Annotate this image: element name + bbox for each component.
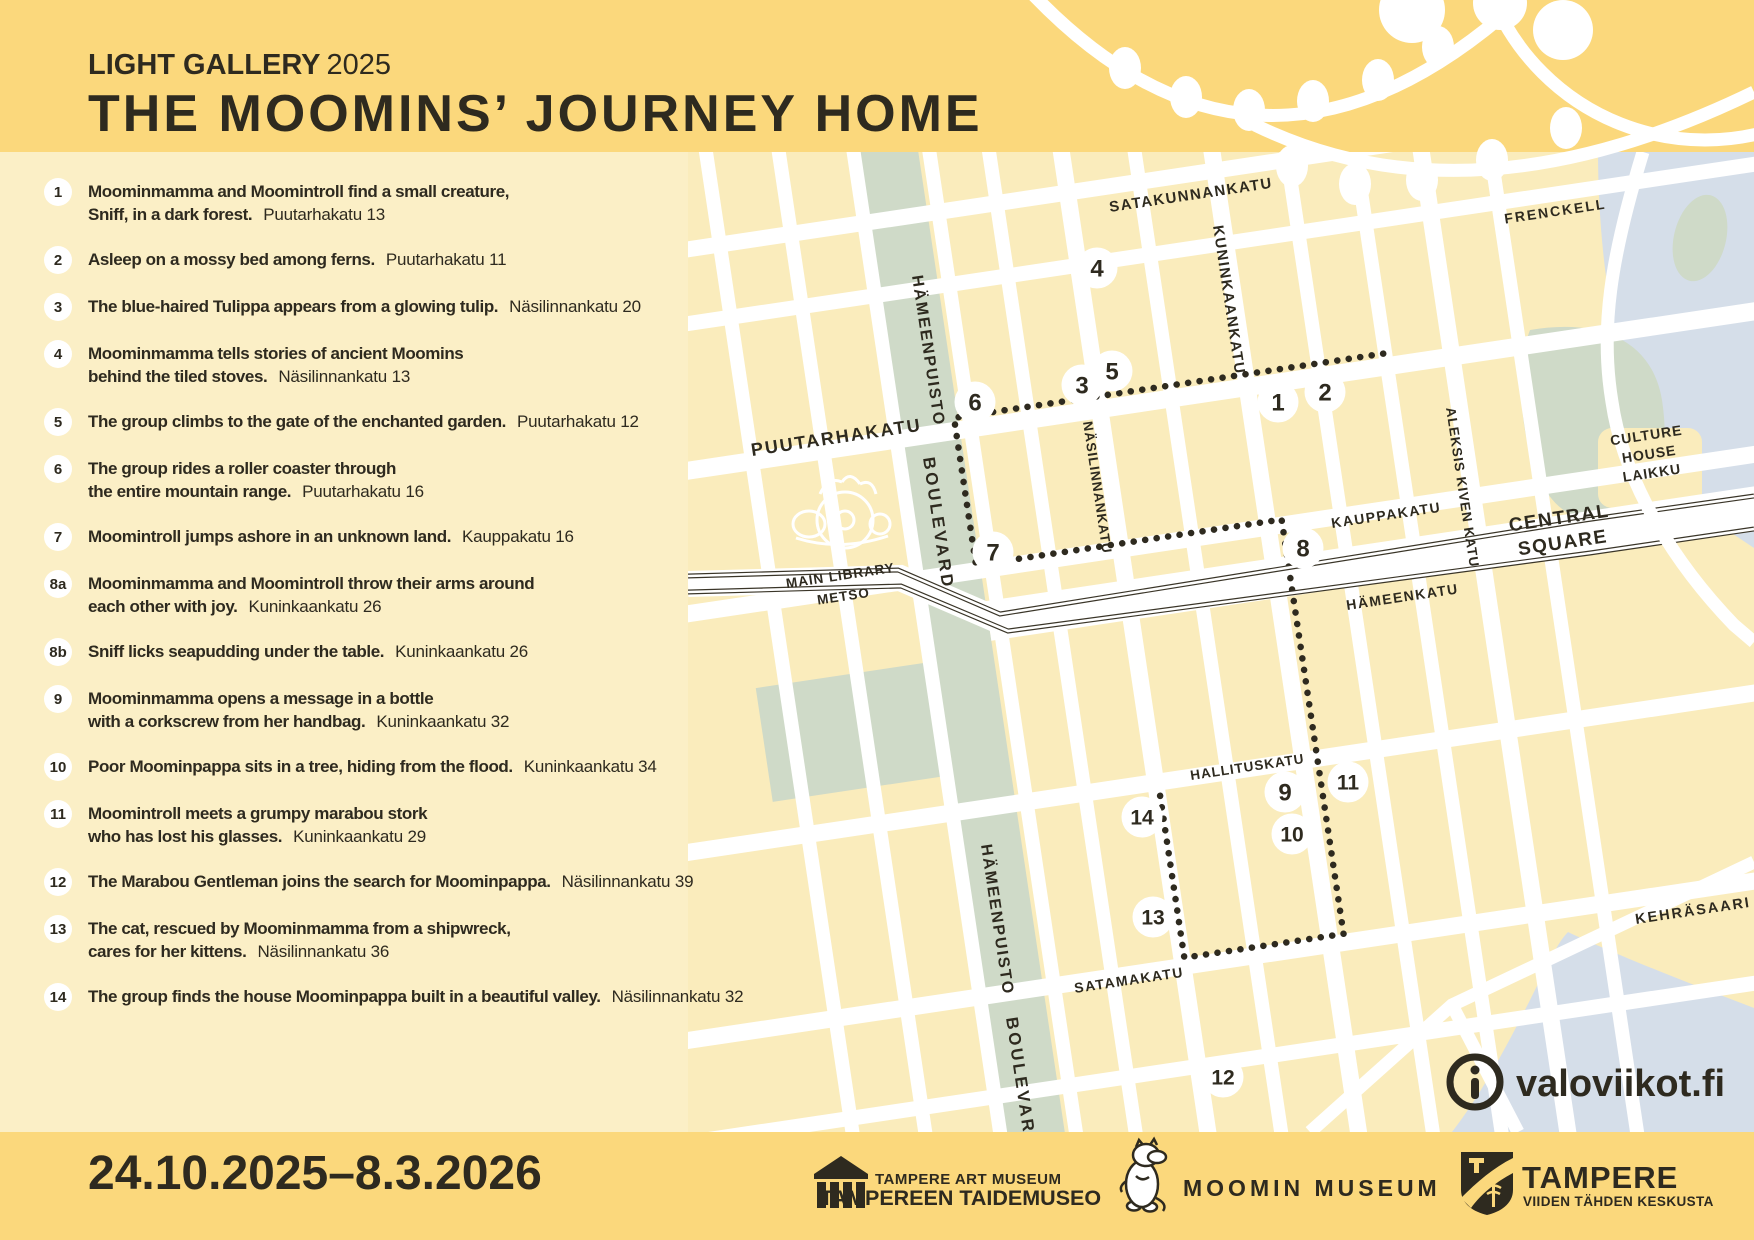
map-marker-5: 5	[1092, 351, 1133, 392]
stop-address: Näsilinnankatu 39	[562, 872, 694, 891]
stop-item-12: 12The Marabou Gentleman joins the search…	[44, 871, 744, 896]
stop-number-badge: 5	[44, 408, 72, 436]
stop-number-badge: 10	[44, 753, 72, 781]
tampere-city-logo: TAMPERE VIIDEN TÄHDEN KESKUSTA	[1461, 1152, 1714, 1215]
svg-text:1: 1	[1271, 390, 1284, 417]
stop-description: Sniff licks seapudding under the table.K…	[88, 641, 528, 664]
stop-description: Asleep on a mossy bed among ferns.Puutar…	[88, 249, 506, 272]
stop-description: Moomintroll jumps ashore in an unknown l…	[88, 526, 574, 549]
stop-item-11: 11Moomintroll meets a grumpy marabou sto…	[44, 803, 744, 849]
title-year: 2025	[327, 49, 392, 81]
stop-address: Näsilinnankatu 13	[278, 367, 410, 386]
svg-text:11: 11	[1337, 772, 1360, 795]
tampere-name: TAMPERE	[1522, 1160, 1678, 1195]
stop-item-14: 14The group finds the house Moominpappa …	[44, 986, 744, 1011]
map-marker-2: 2	[1305, 372, 1346, 413]
stop-number-badge: 9	[44, 685, 72, 713]
svg-text:3: 3	[1075, 373, 1088, 400]
stop-address: Puutarhakatu 12	[517, 412, 639, 431]
stop-item-2: 2Asleep on a mossy bed among ferns.Puuta…	[44, 249, 744, 274]
stop-description: Moominmamma and Moomintroll find a small…	[88, 181, 509, 227]
stop-address: Kuninkaankatu 34	[524, 757, 657, 776]
website-link[interactable]: valoviikot.fi	[1516, 1063, 1725, 1105]
svg-text:10: 10	[1280, 824, 1303, 847]
stop-item-8b: 8bSniff licks seapudding under the table…	[44, 641, 744, 666]
stop-number-badge: 14	[44, 983, 72, 1011]
svg-text:13: 13	[1141, 907, 1164, 930]
svg-text:2: 2	[1318, 380, 1331, 407]
stop-description: The group climbs to the gate of the ench…	[88, 411, 639, 434]
svg-text:8: 8	[1296, 536, 1309, 563]
stop-item-6: 6The group rides a roller coaster throug…	[44, 458, 744, 504]
stop-number-badge: 6	[44, 455, 72, 483]
svg-text:14: 14	[1130, 807, 1154, 830]
tampere-shield-icon	[1461, 1152, 1513, 1215]
stop-number-badge: 7	[44, 523, 72, 551]
map-marker-12: 12	[1203, 1057, 1244, 1098]
svg-text:6: 6	[968, 390, 981, 417]
stop-address: Kauppakatu 16	[462, 527, 574, 546]
stop-number-badge: 3	[44, 293, 72, 321]
stop-number-badge: 8a	[44, 570, 72, 598]
stop-description: Moominmamma and Moomintroll throw their …	[88, 573, 534, 619]
stop-item-8a: 8aMoominmamma and Moomintroll throw thei…	[44, 573, 744, 619]
stop-number-badge: 4	[44, 340, 72, 368]
svg-text:5: 5	[1105, 359, 1118, 386]
stop-number-badge: 1	[44, 178, 72, 206]
stop-address: Puutarhakatu 13	[263, 205, 385, 224]
map-marker-14: 14	[1122, 797, 1163, 838]
svg-text:7: 7	[986, 540, 999, 567]
art-museum-name-fi: TAMPEREEN TAIDEMUSEO	[820, 1186, 1101, 1210]
stop-address: Näsilinnankatu 32	[612, 987, 744, 1006]
map-marker-7: 7	[973, 532, 1014, 573]
stop-description: The group rides a roller coaster through…	[88, 458, 424, 504]
stop-description: Poor Moominpappa sits in a tree, hiding …	[88, 756, 657, 779]
moomin-museum-name: MOOMIN MUSEUM	[1183, 1175, 1441, 1201]
stop-address: Puutarhakatu 16	[302, 482, 424, 501]
map-marker-8: 8	[1283, 528, 1324, 569]
svg-text:9: 9	[1278, 780, 1291, 807]
stop-number-badge: 2	[44, 246, 72, 274]
stop-item-13: 13The cat, rescued by Moominmamma from a…	[44, 918, 744, 964]
map-marker-13: 13	[1133, 897, 1174, 938]
stop-item-7: 7Moomintroll jumps ashore in an unknown …	[44, 526, 744, 551]
svg-text:12: 12	[1211, 1067, 1234, 1090]
stop-item-9: 9Moominmamma opens a message in a bottle…	[44, 688, 744, 734]
title-main: THE MOOMINS’ JOURNEY HOME	[88, 86, 983, 142]
map-marker-1: 1	[1258, 382, 1299, 423]
stop-description: The cat, rescued by Moominmamma from a s…	[88, 918, 511, 964]
map-marker-11: 11	[1328, 762, 1369, 803]
stop-address: Kuninkaankatu 26	[248, 597, 381, 616]
title-gallery: LIGHT GALLERY	[88, 49, 321, 81]
stop-address: Puutarhakatu 11	[386, 250, 507, 269]
stop-description: Moominmamma tells stories of ancient Moo…	[88, 343, 463, 389]
stop-number-badge: 8b	[44, 638, 72, 666]
poster-title: LIGHT GALLERY2025 THE MOOMINS’ JOURNEY H…	[88, 48, 983, 142]
stop-item-4: 4Moominmamma tells stories of ancient Mo…	[44, 343, 744, 389]
map-marker-10: 10	[1272, 814, 1313, 855]
svg-text:4: 4	[1090, 256, 1104, 283]
stop-address: Kuninkaankatu 29	[293, 827, 426, 846]
stop-description: Moomintroll meets a grumpy marabou stork…	[88, 803, 427, 849]
stop-description: The blue-haired Tulippa appears from a g…	[88, 296, 641, 319]
stop-address: Kuninkaankatu 32	[376, 712, 509, 731]
stop-item-10: 10Poor Moominpappa sits in a tree, hidin…	[44, 756, 744, 781]
stop-address: Näsilinnankatu 20	[509, 297, 641, 316]
stop-description: The group finds the house Moominpappa bu…	[88, 986, 743, 1009]
stop-item-1: 1Moominmamma and Moomintroll find a smal…	[44, 181, 744, 227]
stop-number-badge: 11	[44, 800, 72, 828]
stop-item-5: 5The group climbs to the gate of the enc…	[44, 411, 744, 436]
stop-number-badge: 12	[44, 868, 72, 896]
tampere-tagline: VIIDEN TÄHDEN KESKUSTA	[1523, 1194, 1714, 1209]
stop-address: Kuninkaankatu 26	[395, 642, 528, 661]
stop-address: Näsilinnankatu 36	[257, 942, 389, 961]
stop-number-badge: 13	[44, 915, 72, 943]
map-marker-6: 6	[955, 382, 996, 423]
stop-description: The Marabou Gentleman joins the search f…	[88, 871, 693, 894]
stops-list: 1Moominmamma and Moomintroll find a smal…	[44, 181, 744, 1033]
map-marker-9: 9	[1265, 772, 1306, 813]
title-line1: LIGHT GALLERY2025	[88, 48, 983, 82]
map-marker-4: 4	[1077, 248, 1118, 289]
stop-item-3: 3The blue-haired Tulippa appears from a …	[44, 296, 744, 321]
event-dates: 24.10.2025–8.3.2026	[88, 1146, 542, 1201]
stop-description: Moominmamma opens a message in a bottlew…	[88, 688, 509, 734]
